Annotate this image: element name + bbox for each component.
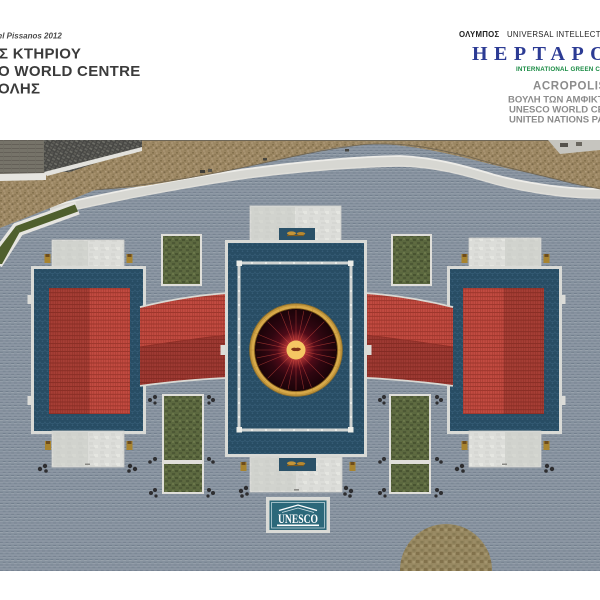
- svg-text:Emmanuel Pissanos 2012: Emmanuel Pissanos 2012: [0, 32, 62, 41]
- svg-text:UNIVERSAL INTELLECTUAL PRO: UNIVERSAL INTELLECTUAL PRO: [507, 30, 600, 39]
- svg-text:ΗΕΡΤΑΡΟΣ: ΗΕΡΤΑΡΟΣ: [472, 43, 600, 65]
- svg-text:ACROPOLIS: ACROPOLIS: [533, 81, 600, 93]
- svg-text:UNESCO: UNESCO: [278, 512, 318, 526]
- svg-text:INTERNATIONAL GREEN CITI: INTERNATIONAL GREEN CITI: [516, 66, 600, 73]
- svg-text:ΟΛΥΜΠΟΣ: ΟΛΥΜΠΟΣ: [459, 30, 500, 39]
- svg-text:ΟΛΗΣ: ΟΛΗΣ: [0, 81, 40, 98]
- svg-text:Σ ΚΤΗΡΙΟΥ: Σ ΚΤΗΡΙΟΥ: [0, 46, 81, 63]
- svg-text:O WORLD CENTRE: O WORLD CENTRE: [0, 63, 141, 80]
- svg-text:UNITED NATIONS PAR: UNITED NATIONS PAR: [509, 115, 600, 126]
